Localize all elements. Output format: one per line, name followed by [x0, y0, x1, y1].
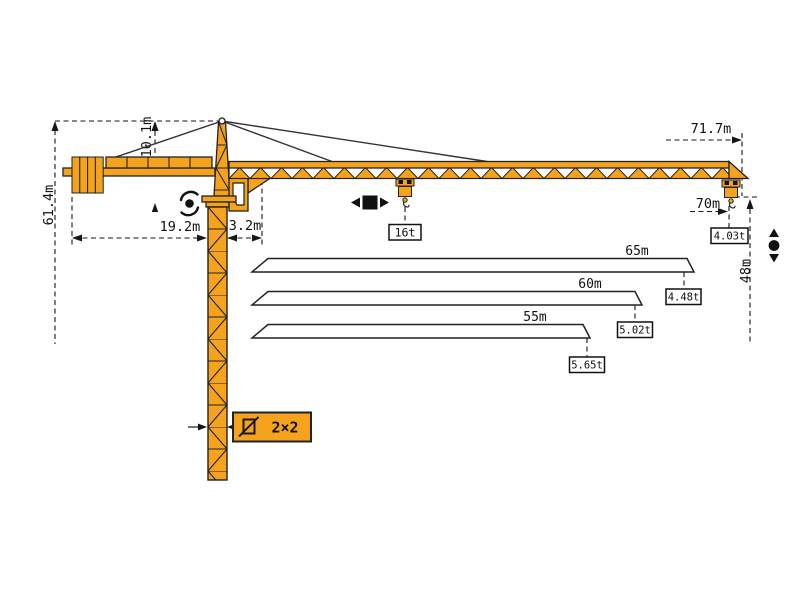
hook-block — [399, 187, 412, 197]
right-arrow-icon — [252, 235, 262, 242]
tie-cables — [113, 121, 487, 162]
jib-variant-profile — [252, 325, 590, 339]
trolley-wheel-icon — [733, 181, 738, 185]
max-radius-label: 71.7m — [691, 121, 732, 137]
turntable — [202, 196, 236, 202]
trolley-wheel-icon — [725, 181, 730, 185]
jib-tie-cable-1 — [222, 121, 332, 162]
tower-head-height-label: 10.1m — [139, 117, 155, 158]
total-height-label: 61.4m — [41, 185, 57, 226]
tip-load-value: 5.65t — [571, 360, 603, 372]
jib-top-chord — [229, 162, 729, 169]
mast-section-size: 2×2 — [271, 419, 298, 437]
tip-hook-height-label: 48m — [738, 259, 754, 283]
crane-spec-diagram: 61.4m 10.1m 19.2m 3.2m 71.7m 48m 70m — [0, 0, 800, 600]
jib-variant-length-label: 60m — [578, 277, 602, 292]
counter-jib — [63, 157, 215, 193]
max-load-value: 16t — [395, 226, 416, 240]
slewing-icon — [181, 192, 198, 215]
trolley-hook-mid — [396, 179, 414, 207]
counter-jib-platform — [106, 157, 212, 168]
mast-section-callout: 2×2 — [188, 413, 311, 442]
left-arrow-icon — [227, 235, 237, 242]
left-arrow-icon — [72, 235, 82, 242]
apex-pulley-icon — [219, 118, 225, 124]
tip-load-value: 4.48t — [668, 292, 700, 304]
jib-heel-gusset — [248, 177, 272, 193]
jib-variant-length-label: 65m — [625, 244, 649, 259]
main-jib — [229, 162, 748, 179]
trolley-travel-icon — [351, 196, 389, 210]
jib-variant-profile — [252, 259, 694, 273]
jib-tie-cable-2 — [222, 121, 487, 162]
jib-heel-offset-label: 3.2m — [229, 218, 262, 234]
jib-truss — [229, 168, 729, 179]
counter-jib-tie-cable — [113, 121, 222, 158]
counterweight-blocks — [72, 157, 103, 193]
operator-cab — [229, 177, 272, 211]
right-arrow-icon — [197, 235, 207, 242]
mast-lattice — [208, 207, 227, 480]
trolley-wheel-icon — [407, 180, 412, 184]
tower-head-mast — [214, 122, 230, 196]
jib-variant-length-label: 55m — [523, 310, 547, 325]
trolley-hook-tip — [722, 180, 740, 208]
right-arrow-icon — [718, 208, 728, 215]
tip-load-value: 5.02t — [619, 325, 651, 337]
tip-radius-label: 70m — [696, 196, 720, 212]
motion-symbols — [181, 192, 779, 263]
jib-variant-profile — [252, 292, 642, 306]
up-arrow-icon — [52, 121, 59, 131]
jib-length-variants: 65m 4.48t 60m 5.02t 55m 5.65t — [252, 244, 701, 373]
right-arrow-icon — [732, 137, 742, 144]
jib-tip — [729, 162, 748, 179]
mast-cap — [206, 202, 229, 207]
trolley-wheel-icon — [399, 180, 404, 184]
jib-variant-55m: 55m 5.65t — [252, 310, 605, 373]
hoisting-icon — [769, 229, 780, 263]
right-arrow-icon — [198, 424, 207, 431]
tip-load-value: 4.03t — [714, 231, 746, 243]
up-arrow-icon — [152, 203, 158, 212]
diagram-canvas: 61.4m 10.1m 19.2m 3.2m 71.7m 48m 70m — [0, 0, 800, 600]
up-arrow-icon — [747, 199, 754, 209]
tower-head — [214, 118, 230, 196]
hook-block — [725, 188, 738, 198]
counter-jib-length-label: 19.2m — [160, 219, 201, 235]
